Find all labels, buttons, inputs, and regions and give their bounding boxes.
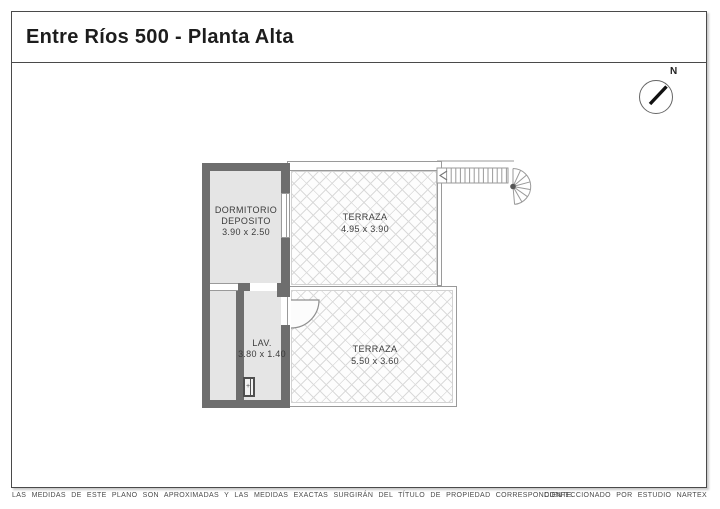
room-dims: 3.90 x 2.50 — [206, 227, 286, 238]
footer-disclaimer: LAS MEDIDAS DE ESTE PLANO SON APROXIMADA… — [12, 492, 574, 499]
room-name: LAV. — [222, 338, 302, 349]
room-name: TERRAZA — [315, 343, 435, 355]
opening-icon — [210, 283, 238, 291]
parapet-top — [287, 161, 442, 171]
room-label-dormitorio: DORMITORIO DEPOSITO 3.90 x 2.50 — [206, 205, 286, 238]
washer-plus-mark: + — [246, 383, 250, 390]
spiral-stairs-icon — [432, 155, 537, 210]
wall-right-upper — [281, 163, 290, 193]
room-name2: DEPOSITO — [206, 216, 286, 227]
room-name: TERRAZA — [305, 211, 425, 223]
room-dims: 5.50 x 3.60 — [315, 355, 435, 367]
floor-plan: + DORMITORIO DEPOSITO 3.90 x 2.50 TERRAZ… — [0, 0, 720, 509]
page: Entre Ríos 500 - Planta Alta N — [0, 0, 720, 509]
wall-bottom — [202, 400, 290, 408]
room-label-lav: LAV. 3.80 x 1.40 — [222, 338, 302, 360]
wall-left — [202, 163, 210, 408]
room-label-terraza-bottom: TERRAZA 5.50 x 3.60 — [315, 343, 435, 367]
door-icon — [283, 293, 329, 335]
room-label-terraza-top: TERRAZA 4.95 x 3.90 — [305, 211, 425, 235]
washer-icon: + — [243, 377, 255, 397]
room-dims: 4.95 x 3.90 — [305, 223, 425, 235]
room-name: DORMITORIO — [206, 205, 286, 216]
footer-credit: CONFECCIONADO POR ESTUDIO NARTEX — [544, 492, 707, 499]
wall-top — [202, 163, 290, 171]
wall-mid-seg1 — [236, 283, 250, 291]
room-dims: 3.80 x 1.40 — [222, 349, 302, 360]
